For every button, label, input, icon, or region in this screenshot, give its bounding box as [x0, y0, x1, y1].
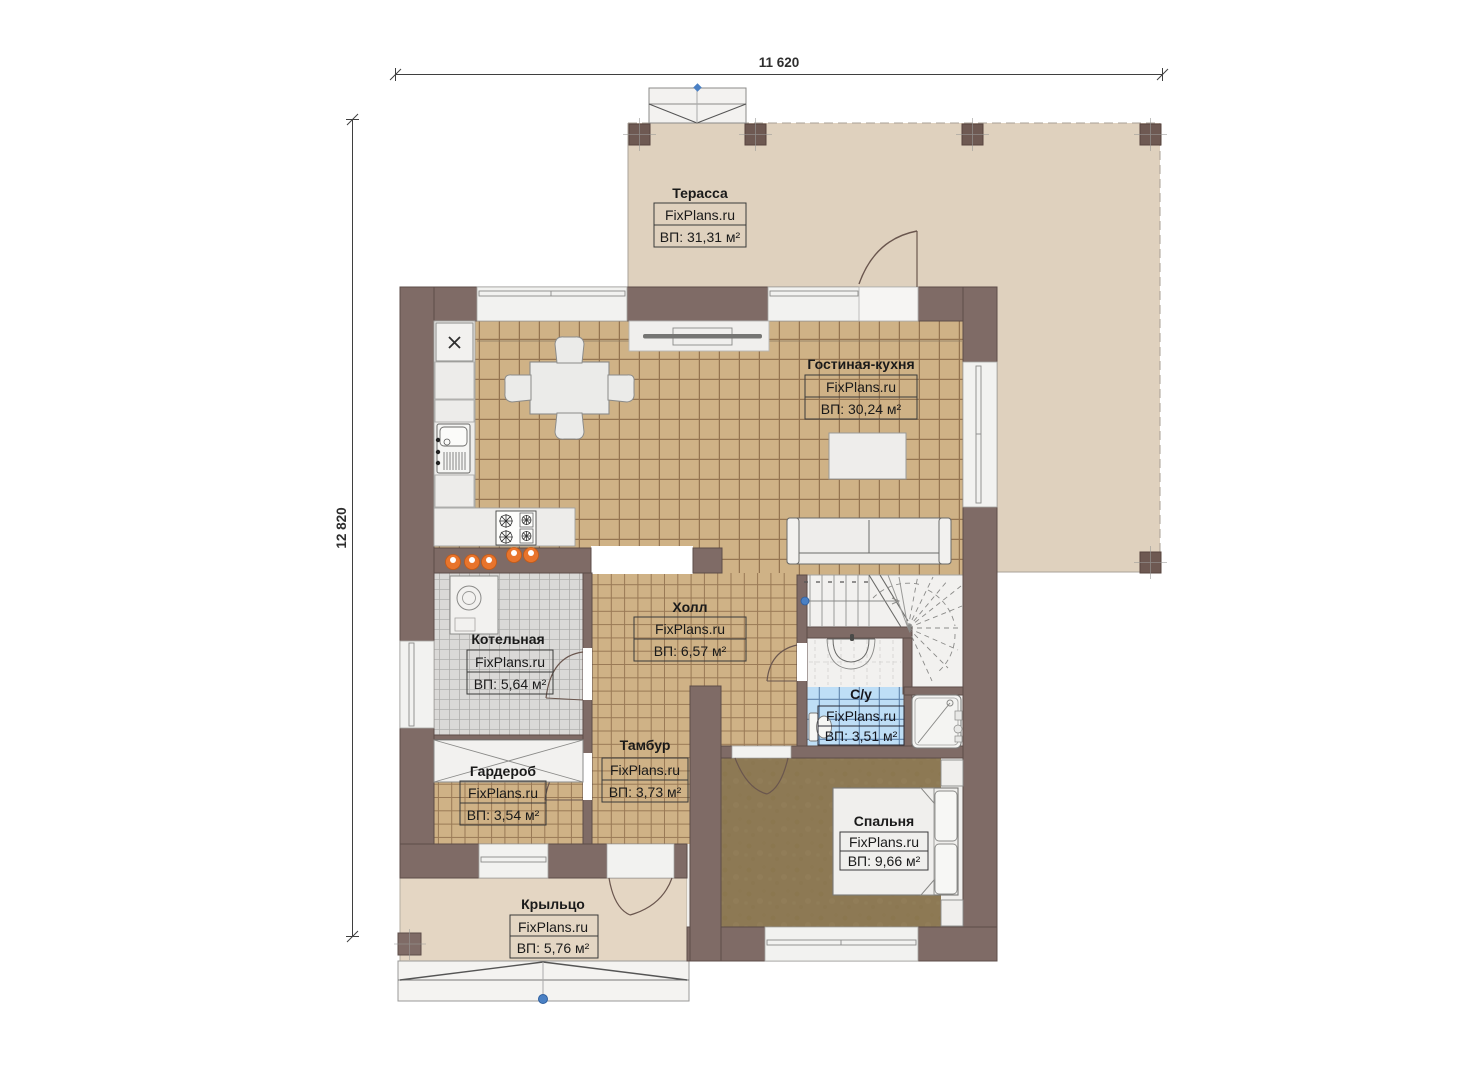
svg-text:С/у: С/у — [850, 686, 872, 702]
svg-text:Гардероб: Гардероб — [470, 763, 537, 779]
svg-text:Спальня: Спальня — [854, 813, 914, 829]
svg-text:ВП: 5,76 м²: ВП: 5,76 м² — [517, 940, 590, 956]
svg-text:Крыльцо: Крыльцо — [521, 896, 585, 912]
svg-text:ВП: 3,73 м²: ВП: 3,73 м² — [609, 784, 682, 800]
svg-text:ВП: 30,24 м²: ВП: 30,24 м² — [821, 401, 902, 417]
svg-text:ВП: 9,66 м²: ВП: 9,66 м² — [848, 853, 921, 869]
svg-text:ВП: 3,54 м²: ВП: 3,54 м² — [467, 807, 540, 823]
svg-text:FixPlans.ru: FixPlans.ru — [518, 919, 588, 935]
svg-text:Гостиная-кухня: Гостиная-кухня — [807, 356, 914, 372]
svg-text:Холл: Холл — [672, 599, 707, 615]
svg-text:ВП: 5,64 м²: ВП: 5,64 м² — [474, 676, 547, 692]
svg-text:FixPlans.ru: FixPlans.ru — [468, 785, 538, 801]
svg-text:ВП: 6,57 м²: ВП: 6,57 м² — [654, 643, 727, 659]
svg-text:Терасса: Терасса — [672, 185, 728, 201]
svg-text:12 820: 12 820 — [334, 507, 349, 548]
svg-text:ВП: 3,51 м²: ВП: 3,51 м² — [825, 728, 898, 744]
svg-text:11 620: 11 620 — [759, 55, 800, 70]
svg-text:FixPlans.ru: FixPlans.ru — [475, 654, 545, 670]
svg-text:Тамбур: Тамбур — [620, 737, 671, 753]
svg-text:FixPlans.ru: FixPlans.ru — [655, 621, 725, 637]
svg-text:ВП: 31,31 м²: ВП: 31,31 м² — [660, 229, 741, 245]
svg-text:Котельная: Котельная — [471, 631, 544, 647]
svg-text:FixPlans.ru: FixPlans.ru — [826, 708, 896, 724]
svg-text:FixPlans.ru: FixPlans.ru — [665, 207, 735, 223]
svg-text:FixPlans.ru: FixPlans.ru — [849, 834, 919, 850]
svg-text:FixPlans.ru: FixPlans.ru — [610, 762, 680, 778]
svg-text:FixPlans.ru: FixPlans.ru — [826, 379, 896, 395]
